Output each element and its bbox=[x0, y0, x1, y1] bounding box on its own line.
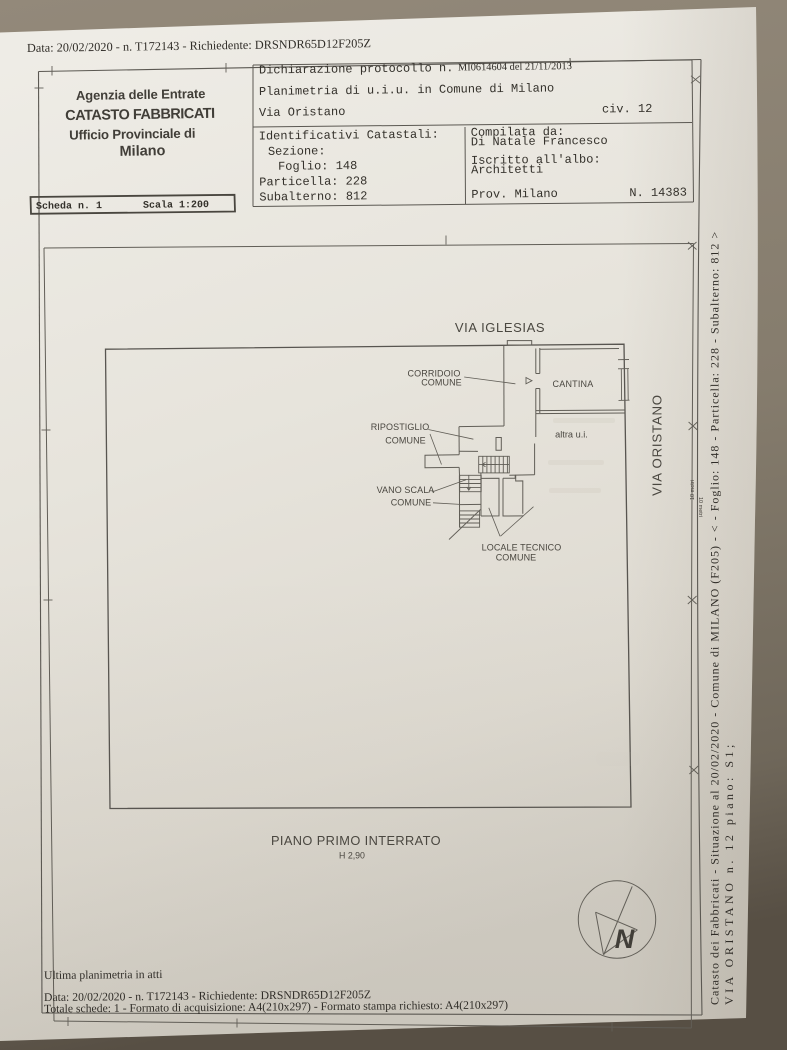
svg-text:MI0614604 del 21/11/2013: MI0614604 del 21/11/2013 bbox=[458, 61, 572, 73]
svg-text:10 metri: 10 metri bbox=[697, 497, 703, 517]
svg-text:RIPOSTIGLIO: RIPOSTIGLIO bbox=[371, 422, 430, 432]
svg-text:N: N bbox=[615, 924, 635, 954]
svg-text:Agenzia delle Entrate: Agenzia delle Entrate bbox=[76, 86, 206, 103]
svg-text:LOCALE TECNICO: LOCALE TECNICO bbox=[482, 543, 562, 553]
svg-text:PIANO PRIMO INTERRATO: PIANO PRIMO INTERRATO bbox=[271, 833, 441, 848]
svg-text:COMUNE: COMUNE bbox=[421, 378, 462, 388]
svg-text:VIA ORISTANO: VIA ORISTANO bbox=[650, 394, 665, 496]
svg-text:Prov. Milano: Prov. Milano bbox=[471, 187, 558, 202]
svg-text:VIA IGLESIAS: VIA IGLESIAS bbox=[455, 320, 545, 335]
svg-text:altra u.i.: altra u.i. bbox=[555, 430, 588, 440]
svg-text:Scheda n. 1: Scheda n. 1 bbox=[36, 200, 102, 213]
svg-text:VIA ORISTANO n. 12 piano: S1;: VIA ORISTANO n. 12 piano: S1; bbox=[722, 741, 736, 1005]
svg-text:Milano: Milano bbox=[119, 143, 165, 160]
svg-text:Subalterno: 812: Subalterno: 812 bbox=[259, 189, 367, 204]
svg-text:Catasto dei Fabbricati - Situa: Catasto dei Fabbricati - Situazione al 2… bbox=[708, 231, 722, 1005]
svg-text:Identificativi Catastali:: Identificativi Catastali: bbox=[259, 128, 439, 144]
svg-text:H 2,90: H 2,90 bbox=[339, 851, 365, 861]
svg-text:CATASTO FABBRICATI: CATASTO FABBRICATI bbox=[65, 106, 215, 124]
svg-text:civ. 12: civ. 12 bbox=[602, 102, 653, 117]
svg-text:COMUNE: COMUNE bbox=[385, 436, 426, 446]
svg-text:Architetti: Architetti bbox=[471, 163, 543, 178]
svg-text:N. 14383: N. 14383 bbox=[629, 186, 687, 201]
svg-text:VANO SCALA: VANO SCALA bbox=[377, 485, 435, 495]
svg-text:Di Natale Francesco: Di Natale Francesco bbox=[471, 134, 608, 149]
svg-text:Dichiarazione protocollo n.: Dichiarazione protocollo n. bbox=[259, 61, 454, 77]
svg-text:Ufficio Provinciale di: Ufficio Provinciale di bbox=[69, 126, 195, 143]
svg-text:COMUNE: COMUNE bbox=[391, 498, 432, 508]
svg-text:COMUNE: COMUNE bbox=[496, 553, 537, 563]
svg-text:Particella: 228: Particella: 228 bbox=[259, 174, 367, 189]
svg-text:10 metri: 10 metri bbox=[690, 480, 696, 500]
svg-text:CANTINA: CANTINA bbox=[553, 379, 594, 389]
svg-text:Scala 1:200: Scala 1:200 bbox=[143, 199, 209, 212]
svg-text:Foglio: 148: Foglio: 148 bbox=[278, 159, 357, 174]
svg-text:Via Oristano: Via Oristano bbox=[259, 105, 346, 120]
svg-text:Ultima planimetria in atti: Ultima planimetria in atti bbox=[44, 968, 163, 982]
svg-text:Sezione:: Sezione: bbox=[268, 144, 326, 159]
